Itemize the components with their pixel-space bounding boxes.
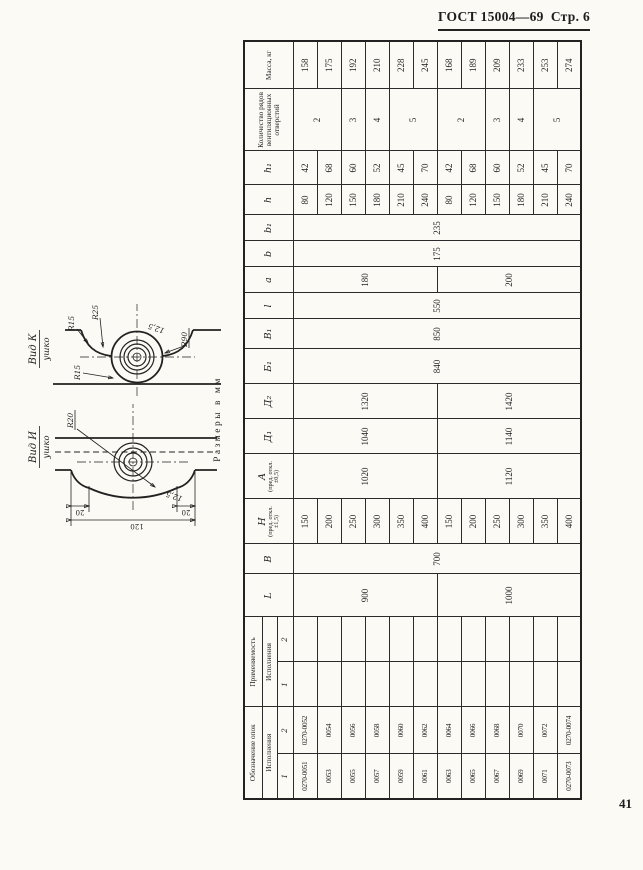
table-cell-h1: 70 xyxy=(413,151,437,185)
table-cell-mass: 158 xyxy=(293,41,317,89)
table-cell-designation_1: 0067 xyxy=(485,754,509,799)
table-cell-h: 240 xyxy=(557,185,581,215)
table-cell-applicability_1 xyxy=(509,662,533,707)
col-header-h: h xyxy=(244,185,293,215)
table-cell-designation_1: 0069 xyxy=(509,754,533,799)
table-cell-designation_1: 0061 xyxy=(413,754,437,799)
table-cell-h1: 68 xyxy=(461,151,485,185)
table-cell-mass: 245 xyxy=(413,41,437,89)
table-cell-h: 80 xyxy=(437,185,461,215)
table-cell-H: 350 xyxy=(533,499,557,544)
table-cell-h: 180 xyxy=(365,185,389,215)
table-cell-designation_1: 0053 xyxy=(317,754,341,799)
table-cell-designation_1: 0057 xyxy=(365,754,389,799)
table-cell-mass: 253 xyxy=(533,41,557,89)
col-group-applicability: Применяемость xyxy=(244,617,262,707)
table-cell-applicability_2 xyxy=(293,617,317,662)
col-header-V1: В₁ xyxy=(244,319,293,349)
table-cell-applicability_1 xyxy=(437,662,461,707)
units-note: Размеры в мм xyxy=(213,369,223,469)
table-cell-designation_2: 0056 xyxy=(341,707,365,754)
subheader-applicability-ispolneniya: Исполнения xyxy=(262,617,277,707)
figure-title: Вид К xyxy=(28,333,39,365)
page-number: 41 xyxy=(619,796,632,812)
table-cell-applicability_2 xyxy=(365,617,389,662)
col-header-A: А(пред. откл. ±0,5) xyxy=(244,454,293,499)
table-cell-designation_1: 0063 xyxy=(437,754,461,799)
figure-vid-k: Вид К ушко R15 R25 R15 xyxy=(25,299,230,404)
col-header-l: l xyxy=(244,293,293,319)
leader-line xyxy=(83,373,113,378)
table-cell-B1: 840 xyxy=(293,349,581,384)
table-cell-h: 240 xyxy=(413,185,437,215)
table-cell-H: 200 xyxy=(461,499,485,544)
variant-col-1: 1 xyxy=(277,754,293,799)
table-cell-applicability_2 xyxy=(341,617,365,662)
radius-label: R15 xyxy=(67,316,76,332)
col-header-a: a xyxy=(244,267,293,293)
col-header-mass: Масса, кг xyxy=(244,41,293,89)
dimension-label: 20 xyxy=(76,508,85,516)
table-cell-designation_2: 0270-0052 xyxy=(293,707,317,754)
table-cell-B: 700 xyxy=(293,544,581,574)
table-cell-designation_2: 0062 xyxy=(413,707,437,754)
variant-col-4: 2 xyxy=(277,617,293,662)
table-cell-h1: 45 xyxy=(389,151,413,185)
table-body: 0270-00510270-00529007001501020104013208… xyxy=(293,41,581,799)
table-cell-H: 150 xyxy=(437,499,461,544)
col-header-h1: h₁ xyxy=(244,151,293,185)
table-cell-mass: 233 xyxy=(509,41,533,89)
figure-subtitle: ушко xyxy=(42,337,52,361)
col-header-D2: Д₂ xyxy=(244,384,293,419)
col-header-L: L xyxy=(244,574,293,617)
col-group-designation: Обозначение опок xyxy=(244,707,262,799)
table-cell-vent_rows: 4 xyxy=(365,89,389,151)
table-cell-l: 550 xyxy=(293,293,581,319)
header-row-groups: Обозначение опок Применяемость L В Н(пре… xyxy=(244,41,262,799)
table-cell-H: 150 xyxy=(293,499,317,544)
table-cell-A: 1120 xyxy=(437,454,581,499)
table-cell-L: 900 xyxy=(293,574,437,617)
dimension-label: 20 xyxy=(182,508,191,516)
table-cell-H: 400 xyxy=(557,499,581,544)
table-cell-h: 150 xyxy=(341,185,365,215)
variant-col-2: 2 xyxy=(277,707,293,754)
table-cell-H: 300 xyxy=(509,499,533,544)
table-cell-D2: 1420 xyxy=(437,384,581,419)
table-cell-applicability_2 xyxy=(413,617,437,662)
table-cell-mass: 192 xyxy=(341,41,365,89)
table-cell-vent_rows: 3 xyxy=(485,89,509,151)
table-cell-applicability_2 xyxy=(533,617,557,662)
table-header: Обозначение опок Применяемость L В Н(пре… xyxy=(244,41,293,799)
table-cell-applicability_1 xyxy=(557,662,581,707)
table-row: 0270-00510270-00529007001501020104013208… xyxy=(293,41,317,799)
table-cell-h1: 45 xyxy=(533,151,557,185)
figure-subtitle: ушко xyxy=(42,435,52,459)
table-cell-a: 200 xyxy=(437,267,581,293)
radius-label: R90 xyxy=(180,332,189,348)
rotated-content: Вид И ушко R20 12,5 xyxy=(25,22,590,802)
table-cell-designation_2: 0072 xyxy=(533,707,557,754)
table-cell-H: 300 xyxy=(365,499,389,544)
table-cell-D2: 1320 xyxy=(293,384,437,419)
table-cell-applicability_2 xyxy=(509,617,533,662)
table-cell-b: 175 xyxy=(293,241,581,267)
table-cell-designation_2: 0058 xyxy=(365,707,389,754)
table-cell-applicability_2 xyxy=(389,617,413,662)
table-cell-designation_2: 0070 xyxy=(509,707,533,754)
table-cell-designation_2: 0066 xyxy=(461,707,485,754)
table-cell-h1: 60 xyxy=(341,151,365,185)
table-cell-D1: 1040 xyxy=(293,419,437,454)
table-cell-h: 120 xyxy=(317,185,341,215)
variant-col-3: 1 xyxy=(277,662,293,707)
dimensions-table: Обозначение опок Применяемость L В Н(пре… xyxy=(243,40,582,800)
table-cell-mass: 210 xyxy=(365,41,389,89)
table-cell-applicability_1 xyxy=(485,662,509,707)
table-cell-D1: 1140 xyxy=(437,419,581,454)
table-cell-applicability_2 xyxy=(317,617,341,662)
table-cell-a: 180 xyxy=(293,267,437,293)
table-cell-H: 350 xyxy=(389,499,413,544)
table-cell-h: 120 xyxy=(461,185,485,215)
col-header-D1: Д₁ xyxy=(244,419,293,454)
radius-label: R25 xyxy=(91,305,100,321)
leader-line xyxy=(77,329,88,343)
table-cell-applicability_2 xyxy=(485,617,509,662)
figure-vid-i: Вид И ушко R20 12,5 xyxy=(25,400,230,532)
table-cell-applicability_2 xyxy=(557,617,581,662)
table-cell-h: 150 xyxy=(485,185,509,215)
leader-line xyxy=(100,318,103,347)
table-cell-designation_2: 0054 xyxy=(317,707,341,754)
table-cell-H: 200 xyxy=(317,499,341,544)
table-cell-designation_2: 0068 xyxy=(485,707,509,754)
table-cell-h1: 52 xyxy=(509,151,533,185)
table-cell-mass: 228 xyxy=(389,41,413,89)
col-header-b: b xyxy=(244,241,293,267)
col-header-vent-rows: Количество рядов вентиляционных отверсти… xyxy=(244,89,293,151)
table-cell-designation_1: 0055 xyxy=(341,754,365,799)
table-cell-mass: 175 xyxy=(317,41,341,89)
table-cell-designation_2: 0270-0074 xyxy=(557,707,581,754)
table-cell-L: 1000 xyxy=(437,574,581,617)
table-cell-vent_rows: 5 xyxy=(533,89,581,151)
table-cell-applicability_1 xyxy=(341,662,365,707)
col-header-B: В xyxy=(244,544,293,574)
table-cell-vent_rows: 3 xyxy=(341,89,365,151)
table-cell-h1: 42 xyxy=(293,151,317,185)
table-cell-b1: 235 xyxy=(293,215,581,241)
radius-label: R20 xyxy=(66,413,75,429)
table-cell-designation_2: 0060 xyxy=(389,707,413,754)
table-cell-A: 1020 xyxy=(293,454,437,499)
table-row: 00630064100015011201140142020080422168 xyxy=(437,41,461,799)
table-cell-applicability_1 xyxy=(365,662,389,707)
table-cell-applicability_1 xyxy=(293,662,317,707)
table-cell-h: 80 xyxy=(293,185,317,215)
table-cell-applicability_1 xyxy=(317,662,341,707)
table-cell-vent_rows: 5 xyxy=(389,89,437,151)
table-cell-designation_1: 0059 xyxy=(389,754,413,799)
table-cell-applicability_1 xyxy=(461,662,485,707)
dimension-label: 120 xyxy=(130,522,143,530)
table-cell-applicability_2 xyxy=(437,617,461,662)
table-cell-designation_1: 0065 xyxy=(461,754,485,799)
table-cell-h1: 52 xyxy=(365,151,389,185)
table-cell-h: 210 xyxy=(389,185,413,215)
table-cell-H: 400 xyxy=(413,499,437,544)
radius-label: R15 xyxy=(73,365,82,381)
table-cell-applicability_1 xyxy=(389,662,413,707)
table-cell-vent_rows: 4 xyxy=(509,89,533,151)
table-cell-mass: 189 xyxy=(461,41,485,89)
subheader-designation-ispolneniya: Исполнения xyxy=(262,707,277,799)
lug-contour xyxy=(81,330,111,356)
figure-title: Вид И xyxy=(28,431,39,464)
table-cell-applicability_2 xyxy=(461,617,485,662)
table-cell-h1: 42 xyxy=(437,151,461,185)
table-cell-designation_1: 0071 xyxy=(533,754,557,799)
table-cell-vent_rows: 2 xyxy=(293,89,341,151)
table-cell-h1: 70 xyxy=(557,151,581,185)
table-cell-h: 180 xyxy=(509,185,533,215)
table-cell-vent_rows: 2 xyxy=(437,89,485,151)
table-cell-applicability_1 xyxy=(413,662,437,707)
col-header-b1: b₁ xyxy=(244,215,293,241)
table-cell-h1: 68 xyxy=(317,151,341,185)
table-cell-V1: 850 xyxy=(293,319,581,349)
table-cell-designation_1: 0270-0073 xyxy=(557,754,581,799)
table-cell-designation_2: 0064 xyxy=(437,707,461,754)
draft-angle-label: 12,5 xyxy=(147,321,166,335)
col-header-H: Н(пред. откл. ±1,5) xyxy=(244,499,293,544)
table-cell-mass: 209 xyxy=(485,41,509,89)
table-cell-h: 210 xyxy=(533,185,557,215)
table-cell-designation_1: 0270-0051 xyxy=(293,754,317,799)
col-header-B1: Б₁ xyxy=(244,349,293,384)
draft-angle-label: 12,5 xyxy=(165,489,184,503)
table-cell-H: 250 xyxy=(341,499,365,544)
table-cell-mass: 274 xyxy=(557,41,581,89)
table-cell-h1: 60 xyxy=(485,151,509,185)
table-cell-applicability_1 xyxy=(533,662,557,707)
table-cell-mass: 168 xyxy=(437,41,461,89)
table-cell-H: 250 xyxy=(485,499,509,544)
